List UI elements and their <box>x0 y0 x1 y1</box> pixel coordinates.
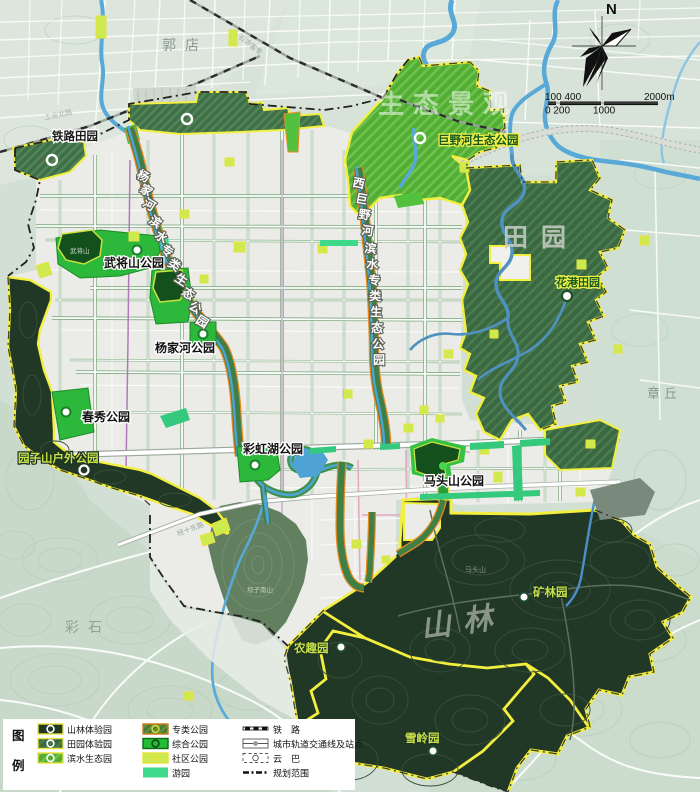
svg-text:生态景观: 生态景观 <box>378 89 518 119</box>
svg-text:田园体验园: 田园体验园 <box>67 739 112 750</box>
svg-text:城市轨道交通线及站点: 城市轨道交通线及站点 <box>273 739 363 750</box>
svg-text:游园: 游园 <box>172 768 190 779</box>
svg-text:云 巴: 云 巴 <box>273 754 300 764</box>
svg-text:态: 态 <box>371 320 383 335</box>
svg-text:章丘: 章丘 <box>647 386 681 401</box>
svg-text:N: N <box>606 1 617 18</box>
svg-text:生: 生 <box>370 304 383 319</box>
svg-text:杨家河公园: 杨家河公园 <box>155 340 215 355</box>
svg-text:2000m: 2000m <box>644 92 675 103</box>
svg-text:专: 专 <box>368 272 381 288</box>
svg-text:农趣园: 农趣园 <box>293 641 329 655</box>
svg-text:规划范围: 规划范围 <box>273 768 309 779</box>
svg-text:武将山公园: 武将山公园 <box>104 255 164 270</box>
svg-text:园: 园 <box>373 353 385 367</box>
svg-text:巨野河生态公园: 巨野河生态公园 <box>438 133 519 147</box>
svg-text:春秀公园: 春秀公园 <box>81 409 130 424</box>
svg-text:彩虹湖公园: 彩虹湖公园 <box>242 441 303 456</box>
svg-text:矿林园: 矿林园 <box>533 585 568 599</box>
svg-text:综合公园: 综合公园 <box>172 739 208 750</box>
svg-text:野: 野 <box>358 207 372 223</box>
svg-text:公: 公 <box>372 337 384 351</box>
svg-text:马头山: 马头山 <box>465 565 486 574</box>
svg-text:园子山户外公园: 园子山户外公园 <box>18 451 99 465</box>
svg-text:100 400: 100 400 <box>545 92 582 103</box>
svg-text:花港田园: 花港田园 <box>556 275 600 289</box>
svg-text:社区公园: 社区公园 <box>172 753 208 764</box>
svg-text:图: 图 <box>12 729 25 743</box>
svg-text:铁路田园: 铁路田园 <box>52 129 98 143</box>
svg-text:马头山公园: 马头山公园 <box>424 473 484 488</box>
svg-text:滨水生态园: 滨水生态园 <box>67 753 112 764</box>
svg-text:武将山: 武将山 <box>70 246 90 255</box>
svg-text:专类公园: 专类公园 <box>172 724 208 735</box>
svg-text:雪岭园: 雪岭园 <box>405 731 440 745</box>
svg-text:例: 例 <box>12 758 25 773</box>
svg-text:坝子南山: 坝子南山 <box>247 585 273 594</box>
svg-text:巨: 巨 <box>354 191 368 207</box>
svg-text:山林体验园: 山林体验园 <box>67 724 112 735</box>
svg-text:铁 路: 铁 路 <box>273 724 300 735</box>
svg-text:彩石: 彩石 <box>65 619 111 635</box>
svg-text:郭店: 郭店 <box>162 37 208 53</box>
svg-text:田园: 田园 <box>503 224 579 252</box>
svg-text:水: 水 <box>366 256 380 272</box>
svg-text:河: 河 <box>360 222 375 239</box>
svg-text:1000: 1000 <box>593 106 616 117</box>
svg-text:滨: 滨 <box>364 240 378 256</box>
svg-text:类: 类 <box>369 288 383 303</box>
svg-text:0 200: 0 200 <box>545 106 570 117</box>
